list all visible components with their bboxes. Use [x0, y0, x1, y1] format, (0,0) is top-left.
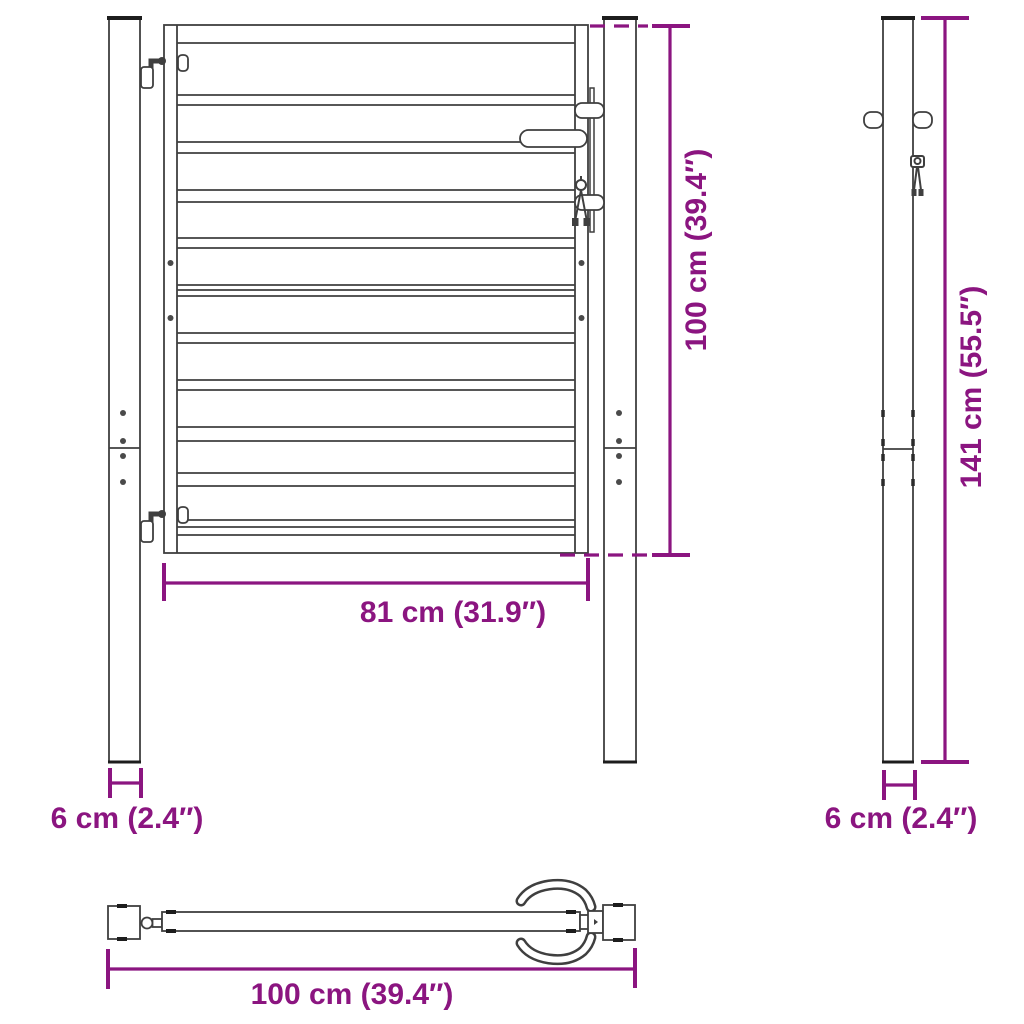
- top-hinge-pin: [140, 918, 162, 929]
- side-post: [881, 18, 915, 762]
- side-view: [864, 18, 932, 762]
- label-side-post-height: 141 cm (55.5″): [955, 286, 988, 489]
- label-front-post-width: 6 cm (2.4″): [51, 802, 204, 835]
- top-right-post: [603, 905, 635, 940]
- gate-dimension-drawing: 100 cm (39.4″) 81 cm (31.9″) 6 cm (2.4″)…: [0, 0, 1024, 1024]
- label-front-gate-width: 81 cm (31.9″): [360, 596, 546, 629]
- left-peg: [864, 112, 883, 128]
- dim-front-post-width: [110, 768, 141, 798]
- hinge-pin-icon: [158, 57, 166, 65]
- top-gate-bar: [162, 912, 580, 931]
- front-view: [107, 18, 638, 762]
- latch-bolt: [575, 103, 604, 118]
- dim-front-gate-width: [164, 558, 588, 601]
- hinge-pin-icon: [158, 510, 166, 518]
- label-side-post-width: 6 cm (2.4″): [825, 802, 978, 835]
- top-view: [108, 884, 635, 959]
- gate-handle: [520, 130, 587, 147]
- front-left-post: [107, 18, 142, 762]
- label-top-total-width: 100 cm (39.4″): [251, 978, 454, 1011]
- diagram-canvas: 100 cm (39.4″) 81 cm (31.9″) 6 cm (2.4″)…: [0, 0, 1024, 1024]
- dim-side-post-width: [884, 770, 915, 800]
- front-right-post: [602, 18, 638, 762]
- gate-leaf: [164, 25, 588, 553]
- label-front-gate-height: 100 cm (39.4″): [680, 149, 713, 352]
- right-peg: [913, 112, 932, 128]
- top-left-post: [108, 906, 140, 939]
